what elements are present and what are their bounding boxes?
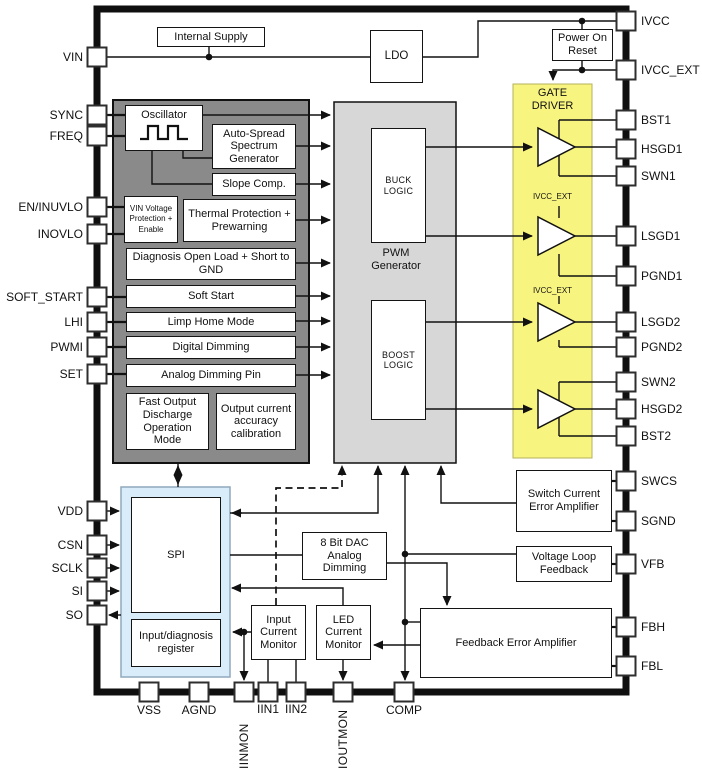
block-auto-spread: Auto-Spread Spectrum Generator	[212, 124, 296, 169]
pin-label-lsgd2: LSGD2	[641, 314, 702, 330]
pin-iin1	[259, 683, 278, 702]
pin-sgnd	[617, 512, 636, 531]
pin-label-sclk: SCLK	[0, 560, 83, 576]
pin-label-vdd: VDD	[0, 503, 83, 519]
pin-swn1	[617, 167, 636, 186]
block-dac: 8 Bit DAC Analog Dimming	[302, 532, 387, 580]
pin-label-iin1: IIN1	[254, 702, 282, 717]
pin-label-swn2: SWN2	[641, 374, 702, 390]
gate-driver-supply-label-1: IVCC_EXT	[513, 192, 592, 203]
pin-label-ioutmon: IOUTMON	[336, 705, 350, 768]
block-input-current-monitor: Input Current Monitor	[251, 605, 306, 660]
pin-label-lsgd1: LSGD1	[641, 228, 702, 244]
pin-pwmi	[88, 338, 107, 357]
pin-label-iinmon: IINMON	[237, 705, 251, 768]
block-ldo: LDO	[370, 30, 423, 83]
pin-label-sync: SYNC	[0, 107, 83, 123]
pwm-generator-title: PWM Generator	[364, 245, 428, 275]
pin-label-fbh: FBH	[641, 619, 702, 635]
pin-label-soft-start: SOFT_START	[0, 289, 83, 305]
pin-label-agnd: AGND	[169, 703, 229, 718]
block-digital-dimming: Digital Dimming	[126, 336, 296, 359]
pin-label-set: SET	[0, 366, 83, 382]
pin-fbl	[617, 657, 636, 676]
gate-driver-title: GATE DRIVER	[516, 86, 589, 114]
pin-label-hsgd1: HSGD1	[641, 141, 702, 157]
block-internal-supply: Internal Supply	[157, 27, 265, 47]
pin-label-en-inuvlo: EN/INUVLO	[0, 199, 83, 215]
pin-label-bst1: BST1	[641, 112, 702, 128]
pin-pgnd2	[617, 338, 636, 357]
pin-label-pgnd2: PGND2	[641, 339, 702, 355]
pin-label-inovlo: INOVLO	[0, 226, 83, 242]
block-power-on-reset: Power On Reset	[552, 29, 613, 61]
pin-ivcc-ext	[617, 61, 636, 80]
pin-sclk	[88, 559, 107, 578]
pin-hsgd1	[617, 140, 636, 159]
pin-swcs	[617, 472, 636, 491]
pin-label-comp: COMP	[374, 703, 434, 718]
pin-sync	[88, 106, 107, 125]
pin-label-lhi: LHI	[0, 314, 83, 330]
block-analog-dimming: Analog Dimming Pin	[126, 364, 296, 387]
pin-vfb	[617, 555, 636, 574]
block-limp-home: Limp Home Mode	[126, 312, 296, 332]
block-voltage-loop-feedback: Voltage Loop Feedback	[516, 546, 612, 582]
block-diagnosis: Diagnosis Open Load + Short to GND	[126, 248, 296, 280]
oscillator-label: Oscillator	[141, 109, 187, 122]
block-soft-start: Soft Start	[126, 285, 296, 308]
block-slope-comp: Slope Comp.	[212, 173, 296, 196]
pin-pgnd1	[617, 267, 636, 286]
pin-comp	[395, 683, 414, 702]
pin-lsgd2	[617, 313, 636, 332]
block-fast-output-discharge: Fast Output Discharge Operation Mode	[126, 393, 209, 450]
pin-agnd	[190, 683, 209, 702]
block-output-current-calibration: Output current accuracy calibration	[216, 393, 296, 450]
pin-soft-start	[88, 288, 107, 307]
pin-label-iin2: IIN2	[282, 702, 310, 717]
pin-swn2	[617, 373, 636, 392]
pin-vss	[140, 683, 159, 702]
block-diagram: Internal Supply LDO Power On Reset GATE …	[0, 0, 702, 768]
pin-inovlo	[88, 225, 107, 244]
pin-label-swcs: SWCS	[641, 473, 702, 489]
pin-bst1	[617, 111, 636, 130]
pin-bst2	[617, 427, 636, 446]
pin-label-pwmi: PWMI	[0, 339, 83, 355]
gate-driver-supply-label-2: IVCC_EXT	[513, 286, 592, 297]
block-led-current-monitor: LED Current Monitor	[316, 605, 371, 660]
pin-label-vin: VIN	[0, 49, 83, 65]
block-spi: SPI	[131, 497, 221, 613]
block-vin-protection: VIN Voltage Protection + Enable	[124, 196, 178, 243]
block-boost-logic: BOOST LOGIC	[371, 300, 426, 420]
pin-csn	[88, 536, 107, 555]
pin-set	[88, 365, 107, 384]
block-thermal-protection: Thermal Protection + Prewarning	[183, 199, 296, 242]
pin-iinmon	[235, 683, 254, 702]
pin-lhi	[88, 313, 107, 332]
pin-ivcc	[617, 12, 636, 31]
pin-vin	[88, 48, 107, 67]
block-input-diagnosis-register: Input/diagnosis register	[131, 619, 221, 667]
pin-label-bst2: BST2	[641, 428, 702, 444]
pin-label-freq: FREQ	[0, 128, 83, 144]
block-feedback-error-amplifier: Feedback Error Amplifier	[420, 608, 612, 678]
pin-lsgd1	[617, 227, 636, 246]
pin-freq	[88, 127, 107, 146]
pin-iin2	[287, 683, 306, 702]
pin-en-inuvlo	[88, 198, 107, 217]
pin-vdd	[88, 502, 107, 521]
block-buck-logic: BUCK LOGIC	[371, 128, 426, 243]
pin-label-swn1: SWN1	[641, 168, 702, 184]
pin-fbh	[617, 618, 636, 637]
pin-label-hsgd2: HSGD2	[641, 401, 702, 417]
pin-label-ivcc: IVCC	[641, 13, 702, 29]
pin-label-pgnd1: PGND1	[641, 268, 702, 284]
pin-label-csn: CSN	[0, 537, 83, 553]
pin-label-so: SO	[0, 607, 83, 623]
pin-label-vfb: VFB	[641, 556, 702, 572]
square-wave-icon	[138, 122, 190, 142]
block-switch-current-error-amplifier: Switch Current Error Amplifier	[516, 470, 612, 532]
pin-so	[88, 606, 107, 625]
pin-label-sgnd: SGND	[641, 513, 702, 529]
pin-label-fbl: FBL	[641, 658, 702, 674]
pin-ioutmon	[334, 683, 353, 702]
block-oscillator: Oscillator	[125, 105, 203, 151]
pin-label-ivcc-ext: IVCC_EXT	[641, 62, 702, 78]
pin-si	[88, 582, 107, 601]
pin-label-si: SI	[0, 583, 83, 599]
pin-hsgd2	[617, 400, 636, 419]
